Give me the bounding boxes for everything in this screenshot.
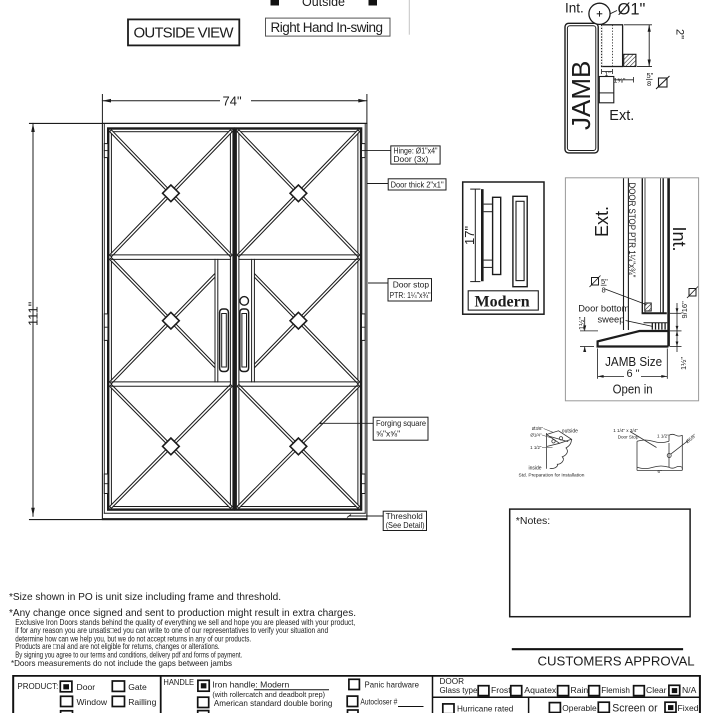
svg-text:Forging square: Forging square [376, 418, 426, 428]
svg-text:Railling: Railling [128, 697, 156, 707]
svg-text:Window: Window [77, 697, 108, 707]
svg-text:Ø1/4": Ø1/4" [530, 432, 542, 437]
svg-text:Modern: Modern [475, 294, 530, 311]
svg-text:Panic hardware: Panic hardware [365, 680, 420, 690]
svg-text:1 1/2": 1 1/2" [530, 445, 542, 450]
svg-text:Door Stop: Door Stop [618, 434, 639, 439]
svg-text:Int.: Int. [565, 1, 584, 16]
svg-text:Iron handle: Modern: Iron handle: Modern [212, 680, 289, 690]
svg-text:Operable: Operable [562, 703, 597, 713]
svg-text:Int.: Int. [669, 227, 689, 252]
svg-text:1 1/4" x 3/4": 1 1/4" x 3/4" [613, 428, 638, 433]
svg-text:1⅝": 1⅝" [614, 78, 626, 85]
svg-text:6 ": 6 " [627, 368, 640, 380]
svg-text:PTR: 1¼"x¾": PTR: 1¼"x¾" [390, 290, 431, 300]
svg-text:Ø3/8": Ø3/8" [532, 426, 544, 431]
svg-text:N/A: N/A [682, 685, 697, 695]
svg-text:2": 2" [674, 29, 686, 39]
svg-text:*Size shown in PO is unit size: *Size shown in PO is unit size including… [9, 592, 281, 603]
svg-text:Door (3x): Door (3x) [394, 154, 429, 164]
svg-text:JAMB Size: JAMB Size [605, 354, 662, 369]
svg-text:1 1/2": 1 1/2" [657, 434, 669, 439]
svg-text:6": 6" [658, 469, 663, 474]
svg-text:Hurricane rated: Hurricane rated [457, 704, 514, 713]
svg-text:(See Detail): (See Detail) [386, 520, 425, 530]
svg-text:HANDLE: HANDLE [163, 677, 194, 687]
svg-text:Gate: Gate [128, 682, 147, 692]
svg-text:8: 8 [647, 79, 651, 88]
svg-text:Screen or: Screen or [612, 702, 658, 713]
svg-text:Glass type: Glass type [440, 685, 478, 695]
svg-text:American standard double borin: American standard double boring [214, 698, 333, 708]
svg-text:Fixed: Fixed [678, 703, 699, 713]
svg-text:*Notes:: *Notes: [516, 515, 550, 527]
svg-text:111": 111" [26, 301, 41, 326]
svg-text:Right Hand In-swing: Right Hand In-swing [271, 20, 384, 35]
svg-text:Door bottom: Door bottom [578, 304, 629, 314]
svg-text:Ext.: Ext. [592, 206, 612, 237]
svg-text:1½": 1½" [679, 357, 688, 370]
svg-text:Ext.: Ext. [609, 108, 634, 124]
svg-text:⅝"x⅝": ⅝"x⅝" [376, 429, 400, 439]
svg-text:outside: outside [562, 429, 578, 435]
svg-text:Autocloser #: Autocloser # [360, 697, 397, 707]
svg-text:8: 8 [602, 286, 606, 295]
svg-text:PRODUCT:: PRODUCT: [17, 681, 58, 691]
svg-text:Door thick 2"x1": Door thick 2"x1" [391, 179, 444, 189]
svg-text:1½": 1½" [577, 317, 586, 330]
svg-text:5": 5" [601, 277, 608, 286]
svg-text:Door stop: Door stop [393, 280, 430, 290]
svg-text:Clear: Clear [646, 685, 667, 695]
svg-text:17": 17" [462, 226, 477, 245]
svg-text:Ø1": Ø1" [618, 1, 646, 19]
svg-text:JAMB: JAMB [566, 61, 596, 130]
svg-text:inside: inside [529, 465, 542, 471]
svg-text:Door: Door [77, 682, 96, 692]
svg-text:Flemish: Flemish [601, 685, 630, 695]
svg-text:74": 74" [223, 93, 242, 108]
svg-text:Rain: Rain [571, 685, 589, 695]
svg-text:Frost: Frost [491, 685, 511, 695]
svg-text:Outside: Outside [302, 0, 345, 9]
svg-text:9/16": 9/16" [680, 301, 689, 319]
svg-text:CUSTOMERS APPROVAL: CUSTOMERS APPROVAL [538, 654, 695, 669]
svg-text:*Doors measurements do not inc: *Doors measurements do not include the g… [11, 658, 232, 668]
svg-text:DOOR STOP PTR 1¼"x¾": DOOR STOP PTR 1¼"x¾" [626, 183, 637, 278]
svg-text:OUTSIDE VIEW: OUTSIDE VIEW [134, 25, 235, 42]
svg-text:Aquatex: Aquatex [524, 685, 557, 695]
svg-text:Open in: Open in [613, 382, 653, 397]
svg-text:sweep: sweep [598, 315, 625, 325]
svg-text:Std. Preparation for Installat: Std. Preparation for Installation [519, 473, 585, 479]
